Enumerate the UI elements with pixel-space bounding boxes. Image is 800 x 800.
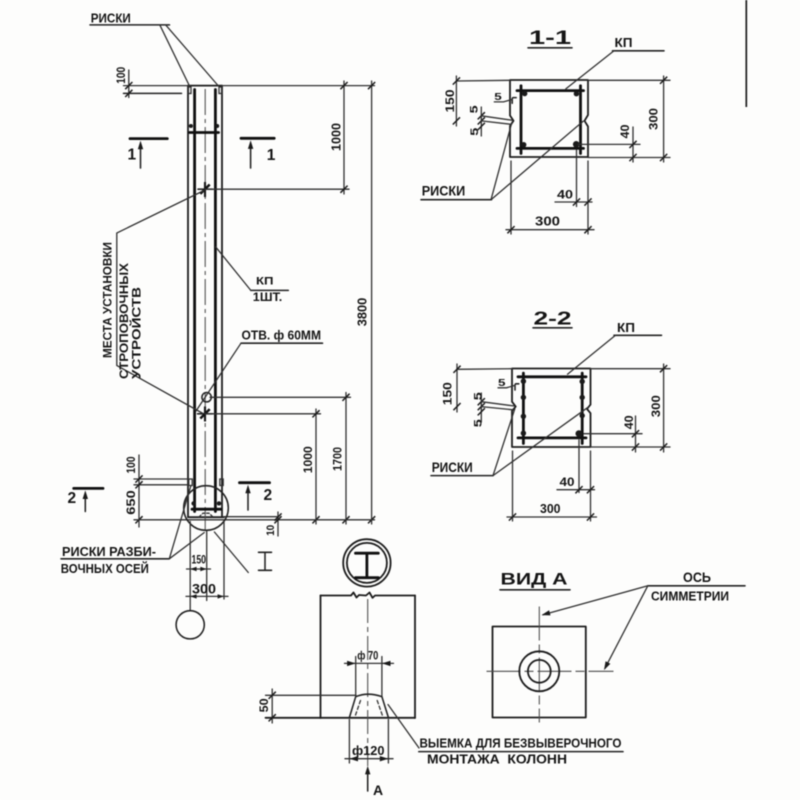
svg-text:300: 300 [649,395,663,417]
svg-text:300: 300 [192,581,216,596]
svg-text:5: 5 [469,128,481,136]
svg-text:РИСКИ: РИСКИ [422,184,466,199]
svg-text:РИСКИ: РИСКИ [91,10,131,25]
svg-text:650: 650 [124,490,138,515]
svg-text:3800: 3800 [356,298,370,327]
svg-text:300: 300 [535,213,560,228]
svg-text:ф 70: ф 70 [357,649,378,663]
svg-text:КП: КП [615,35,633,50]
svg-text:150: 150 [441,382,455,405]
svg-text:5: 5 [494,91,502,103]
svg-text:1: 1 [128,147,137,164]
svg-text:1: 1 [267,147,276,164]
svg-text:150: 150 [192,555,207,567]
svg-text:1-1: 1-1 [529,28,572,49]
svg-text:СИММЕТРИИ: СИММЕТРИИ [651,589,729,603]
svg-text:40: 40 [560,477,575,489]
svg-text:1ШТ.: 1ШТ. [253,292,282,304]
svg-text:МЕСТА УСТАНОВКИ: МЕСТА УСТАНОВКИ [102,242,114,358]
svg-text:40: 40 [624,415,636,429]
svg-text:2: 2 [68,490,77,507]
svg-text:ф120: ф120 [352,744,385,758]
svg-text:1000: 1000 [330,123,344,151]
svg-text:5: 5 [472,419,484,427]
svg-text:40: 40 [557,189,573,201]
svg-text:40: 40 [620,125,632,139]
svg-text:2: 2 [264,487,273,504]
svg-text:100: 100 [124,456,138,473]
svg-text:1700: 1700 [330,447,344,471]
svg-text:РИСКИ РАЗБИ-: РИСКИ РАЗБИ- [62,545,156,559]
svg-text:РИСКИ: РИСКИ [432,460,473,475]
svg-text:СТРОПОВОЧНЫХ: СТРОПОВОЧНЫХ [119,263,131,379]
svg-text:300: 300 [647,108,661,130]
svg-text:5: 5 [472,392,484,400]
svg-text:УСТРОЙСТВ: УСТРОЙСТВ [130,287,143,379]
svg-text:МОНТАЖА КОЛОНН: МОНТАЖА КОЛОНН [427,753,567,767]
svg-text:ОСЬ: ОСЬ [683,570,711,585]
svg-text:2-2: 2-2 [534,309,572,329]
svg-text:ВЫЕМКА ДЛЯ БЕЗВЫВЕРОЧНОГО: ВЫЕМКА ДЛЯ БЕЗВЫВЕРОЧНОГО [420,736,622,750]
svg-text:А: А [373,782,383,798]
svg-text:КП: КП [617,320,635,335]
svg-text:5: 5 [498,377,506,389]
svg-text:ВОЧНЫХ ОСЕЙ: ВОЧНЫХ ОСЕЙ [61,561,149,576]
svg-text:300: 300 [540,501,561,516]
svg-text:150: 150 [443,89,457,112]
svg-text:1000: 1000 [301,446,315,473]
svg-text:ВИД А: ВИД А [501,570,568,589]
svg-text:100: 100 [114,67,128,84]
svg-text:5: 5 [468,105,480,113]
svg-text:КП: КП [256,275,274,287]
svg-text:50: 50 [257,698,271,712]
svg-text:ОТВ. ф 60ММ: ОТВ. ф 60ММ [242,329,322,343]
svg-text:10: 10 [265,525,277,536]
